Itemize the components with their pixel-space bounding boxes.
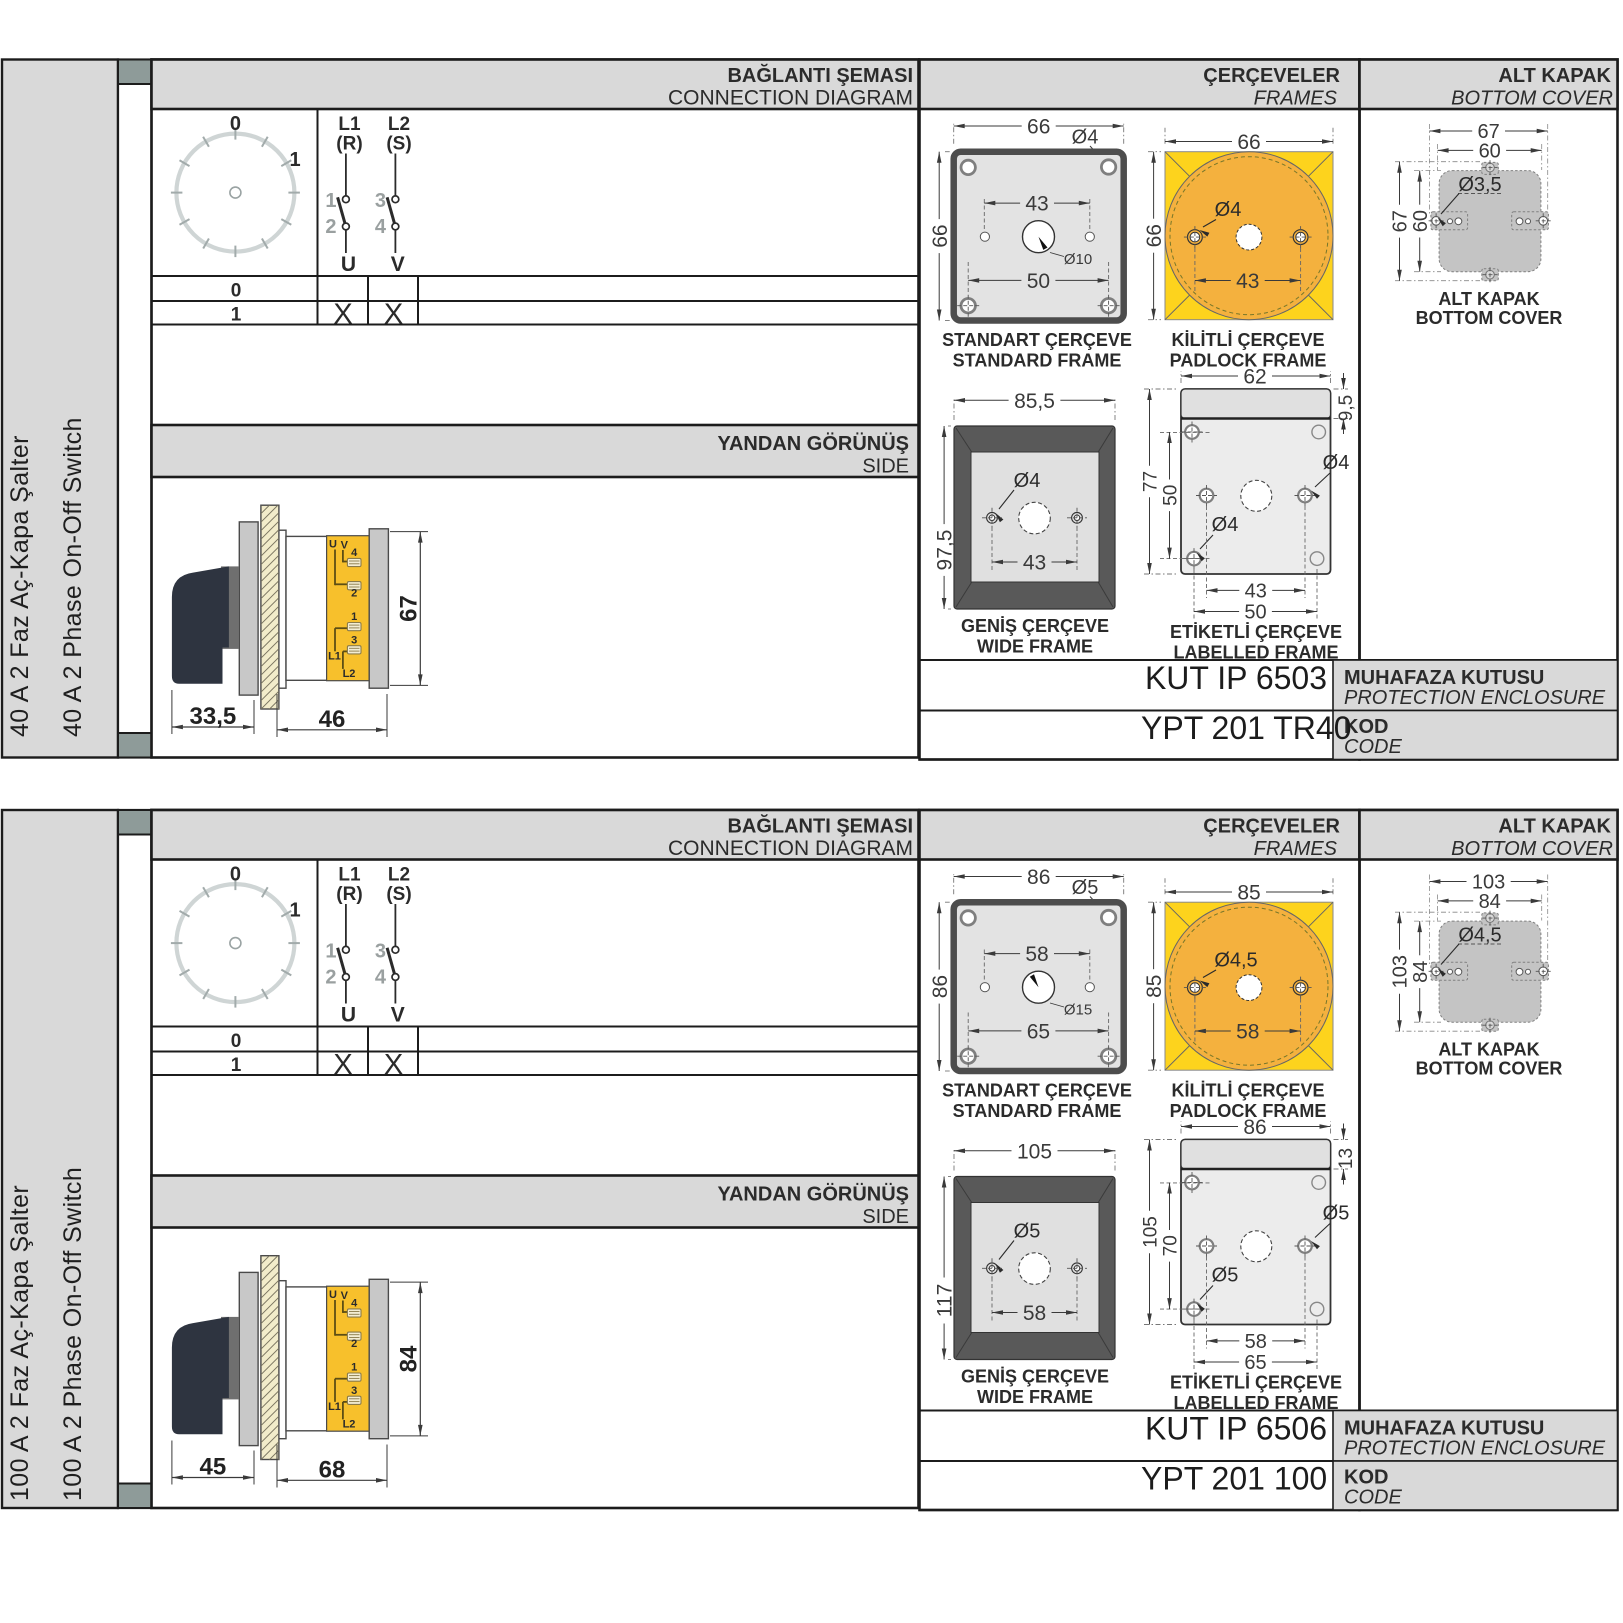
svg-text:U: U [341, 1004, 356, 1027]
svg-text:50: 50 [1244, 602, 1266, 624]
svg-text:X: X [333, 1049, 352, 1081]
svg-text:(R): (R) [336, 134, 362, 155]
svg-text:V: V [341, 540, 349, 552]
svg-text:2: 2 [325, 216, 336, 238]
svg-text:PROTECTION ENCLOSURE: PROTECTION ENCLOSURE [1344, 687, 1606, 709]
svg-text:4: 4 [351, 547, 358, 559]
svg-text:V: V [341, 1290, 349, 1302]
svg-text:KOD: KOD [1344, 1467, 1388, 1489]
svg-text:STANDART ÇERÇEVE: STANDART ÇERÇEVE [942, 330, 1132, 350]
svg-text:43: 43 [1236, 270, 1259, 293]
svg-text:58: 58 [1245, 1331, 1267, 1353]
svg-text:ÇERÇEVELER: ÇERÇEVELER [1203, 65, 1340, 87]
svg-text:V: V [391, 1004, 405, 1027]
svg-text:L2: L2 [343, 1419, 356, 1431]
svg-text:58: 58 [1236, 1021, 1259, 1044]
svg-text:U: U [329, 1289, 337, 1301]
svg-text:V: V [391, 253, 405, 276]
svg-text:Ø4: Ø4 [1212, 514, 1239, 536]
svg-text:CONNECTION DIAGRAM: CONNECTION DIAGRAM [668, 87, 913, 110]
svg-text:CONNECTION DIAGRAM: CONNECTION DIAGRAM [668, 837, 913, 860]
svg-text:105: 105 [1017, 1140, 1052, 1163]
svg-text:85: 85 [1143, 975, 1166, 998]
svg-text:3: 3 [375, 190, 386, 212]
svg-text:(R): (R) [336, 884, 362, 905]
svg-text:KİLİTLİ ÇERÇEVE: KİLİTLİ ÇERÇEVE [1171, 1081, 1324, 1101]
svg-text:Ø4: Ø4 [1215, 199, 1242, 221]
svg-text:4: 4 [375, 216, 387, 238]
svg-text:1: 1 [231, 1055, 242, 1076]
svg-text:66: 66 [929, 224, 952, 247]
svg-text:70: 70 [1160, 1235, 1181, 1256]
svg-text:Ø5: Ø5 [1072, 877, 1099, 899]
svg-text:86: 86 [1243, 1116, 1266, 1139]
svg-text:Ø5: Ø5 [1212, 1265, 1239, 1287]
svg-text:Ø4: Ø4 [1323, 452, 1350, 474]
svg-text:85,5: 85,5 [1014, 390, 1055, 413]
svg-text:Ø15: Ø15 [1064, 1002, 1092, 1019]
svg-text:1: 1 [325, 190, 336, 212]
svg-text:BAĞLANTI ŞEMASI: BAĞLANTI ŞEMASI [727, 63, 913, 87]
svg-text:66: 66 [1027, 116, 1050, 139]
svg-text:SIDE: SIDE [862, 1206, 909, 1228]
svg-text:FRAMES: FRAMES [1254, 88, 1338, 110]
svg-text:100 A 2 Faz Aç-Kapa Şalter: 100 A 2 Faz Aç-Kapa Şalter [6, 1185, 34, 1501]
svg-text:BAĞLANTI ŞEMASI: BAĞLANTI ŞEMASI [727, 814, 913, 838]
svg-text:86: 86 [929, 975, 952, 998]
svg-text:45: 45 [200, 1454, 227, 1481]
svg-text:67: 67 [1390, 210, 1412, 232]
svg-text:3: 3 [375, 941, 386, 963]
svg-text:YPT 201 TR40: YPT 201 TR40 [1141, 710, 1352, 746]
svg-text:L2: L2 [388, 114, 410, 135]
svg-text:65: 65 [1244, 1352, 1266, 1374]
svg-text:GENİŞ ÇERÇEVE: GENİŞ ÇERÇEVE [961, 616, 1109, 636]
svg-text:ETİKETLİ ÇERÇEVE: ETİKETLİ ÇERÇEVE [1170, 1373, 1342, 1393]
svg-text:BOTTOM COVER: BOTTOM COVER [1416, 1059, 1563, 1079]
svg-text:84: 84 [1479, 891, 1501, 913]
svg-text:43: 43 [1023, 552, 1046, 575]
svg-text:Ø5: Ø5 [1014, 1221, 1041, 1243]
svg-text:103: 103 [1390, 955, 1412, 988]
svg-text:MUHAFAZA KUTUSU: MUHAFAZA KUTUSU [1344, 1418, 1544, 1440]
svg-text:L1: L1 [338, 865, 361, 886]
svg-text:0: 0 [231, 1031, 242, 1052]
svg-text:0: 0 [230, 113, 241, 135]
svg-text:BOTTOM COVER: BOTTOM COVER [1416, 308, 1563, 328]
svg-text:(S): (S) [386, 884, 411, 905]
svg-text:68: 68 [319, 1456, 346, 1483]
svg-text:Ø4,5: Ø4,5 [1458, 925, 1501, 947]
svg-text:CODE: CODE [1344, 1487, 1402, 1509]
svg-text:BOTTOM COVER: BOTTOM COVER [1451, 88, 1613, 110]
svg-text:58: 58 [1023, 1302, 1046, 1325]
svg-text:ALT KAPAK: ALT KAPAK [1498, 65, 1611, 87]
svg-text:YPT 201 100: YPT 201 100 [1141, 1461, 1327, 1497]
svg-text:KUT IP 6506: KUT IP 6506 [1145, 1411, 1327, 1447]
svg-text:SIDE: SIDE [862, 456, 909, 478]
svg-text:58: 58 [1025, 943, 1048, 966]
svg-text:2: 2 [351, 1338, 357, 1350]
svg-text:43: 43 [1025, 193, 1048, 216]
svg-text:X: X [333, 299, 352, 331]
svg-text:66: 66 [1143, 224, 1166, 247]
svg-text:U: U [329, 539, 337, 551]
svg-text:62: 62 [1243, 366, 1266, 389]
svg-text:1: 1 [231, 305, 242, 326]
svg-text:YANDAN GÖRÜNÜŞ: YANDAN GÖRÜNÜŞ [717, 1183, 909, 1206]
svg-text:40 A 2 Faz Aç-Kapa Şalter: 40 A 2 Faz Aç-Kapa Şalter [6, 435, 34, 737]
svg-text:L1: L1 [338, 114, 361, 135]
svg-text:50: 50 [1160, 485, 1181, 506]
svg-text:WIDE FRAME: WIDE FRAME [977, 637, 1093, 657]
svg-text:4: 4 [375, 967, 387, 989]
svg-text:4: 4 [351, 1298, 358, 1310]
svg-text:1: 1 [351, 611, 357, 623]
svg-text:84: 84 [395, 1345, 422, 1372]
svg-text:ALT KAPAK: ALT KAPAK [1438, 289, 1539, 309]
svg-text:97,5: 97,5 [934, 530, 957, 571]
svg-text:85: 85 [1237, 882, 1260, 905]
svg-text:STANDARD FRAME: STANDARD FRAME [953, 1101, 1122, 1121]
svg-text:YANDAN GÖRÜNÜŞ: YANDAN GÖRÜNÜŞ [717, 432, 909, 455]
svg-text:86: 86 [1027, 866, 1050, 889]
svg-text:KİLİTLİ ÇERÇEVE: KİLİTLİ ÇERÇEVE [1171, 330, 1324, 350]
svg-text:13: 13 [1336, 1148, 1357, 1169]
svg-text:3: 3 [351, 1385, 357, 1397]
svg-text:X: X [384, 299, 403, 331]
svg-text:1: 1 [351, 1362, 357, 1374]
svg-text:L2: L2 [343, 668, 356, 680]
svg-text:U: U [341, 253, 356, 276]
svg-text:WIDE FRAME: WIDE FRAME [977, 1387, 1093, 1407]
svg-text:ALT KAPAK: ALT KAPAK [1498, 816, 1611, 838]
svg-text:1: 1 [325, 941, 336, 963]
svg-text:Ø4,5: Ø4,5 [1214, 950, 1257, 972]
svg-text:STANDARD FRAME: STANDARD FRAME [953, 351, 1122, 371]
svg-text:FRAMES: FRAMES [1254, 838, 1338, 860]
svg-text:33,5: 33,5 [190, 703, 237, 730]
svg-text:66: 66 [1237, 131, 1260, 154]
svg-text:2: 2 [325, 967, 336, 989]
svg-text:0: 0 [231, 281, 242, 302]
svg-text:0: 0 [230, 864, 241, 886]
svg-text:ALT KAPAK: ALT KAPAK [1438, 1040, 1539, 1060]
svg-text:65: 65 [1027, 1021, 1050, 1044]
svg-text:BOTTOM COVER: BOTTOM COVER [1451, 838, 1613, 860]
svg-text:ETİKETLİ ÇERÇEVE: ETİKETLİ ÇERÇEVE [1170, 622, 1342, 642]
svg-text:1: 1 [289, 900, 300, 922]
svg-text:60: 60 [1479, 141, 1501, 163]
svg-text:2: 2 [351, 587, 357, 599]
svg-text:Ø3,5: Ø3,5 [1458, 174, 1501, 196]
svg-text:50: 50 [1027, 270, 1050, 293]
svg-text:43: 43 [1245, 581, 1267, 603]
svg-text:9,5: 9,5 [1336, 395, 1357, 421]
svg-text:Ø4: Ø4 [1014, 470, 1041, 492]
svg-text:3: 3 [351, 634, 357, 646]
svg-text:CODE: CODE [1344, 736, 1402, 758]
svg-text:105: 105 [1140, 1216, 1161, 1248]
svg-text:Ø5: Ø5 [1323, 1203, 1350, 1225]
svg-text:KUT IP 6503: KUT IP 6503 [1145, 660, 1327, 696]
svg-text:GENİŞ ÇERÇEVE: GENİŞ ÇERÇEVE [961, 1367, 1109, 1387]
svg-text:46: 46 [319, 706, 346, 733]
svg-text:MUHAFAZA KUTUSU: MUHAFAZA KUTUSU [1344, 667, 1544, 689]
svg-text:ÇERÇEVELER: ÇERÇEVELER [1203, 816, 1340, 838]
svg-text:67: 67 [395, 595, 422, 622]
svg-text:Ø4: Ø4 [1072, 127, 1099, 149]
svg-text:L1: L1 [328, 651, 341, 663]
svg-text:X: X [384, 1049, 403, 1081]
svg-text:117: 117 [934, 1284, 957, 1317]
svg-text:100 A 2 Phase On-Off Switch: 100 A 2 Phase On-Off Switch [59, 1167, 87, 1501]
svg-text:40 A 2 Phase On-Off Switch: 40 A 2 Phase On-Off Switch [59, 417, 87, 737]
svg-text:L2: L2 [388, 865, 410, 886]
svg-text:PROTECTION ENCLOSURE: PROTECTION ENCLOSURE [1344, 1438, 1606, 1460]
svg-text:(S): (S) [386, 134, 411, 155]
svg-text:L1: L1 [328, 1401, 341, 1413]
svg-text:Ø10: Ø10 [1064, 251, 1092, 268]
svg-text:1: 1 [289, 149, 300, 171]
svg-text:77: 77 [1140, 471, 1161, 492]
svg-text:STANDART ÇERÇEVE: STANDART ÇERÇEVE [942, 1081, 1132, 1101]
